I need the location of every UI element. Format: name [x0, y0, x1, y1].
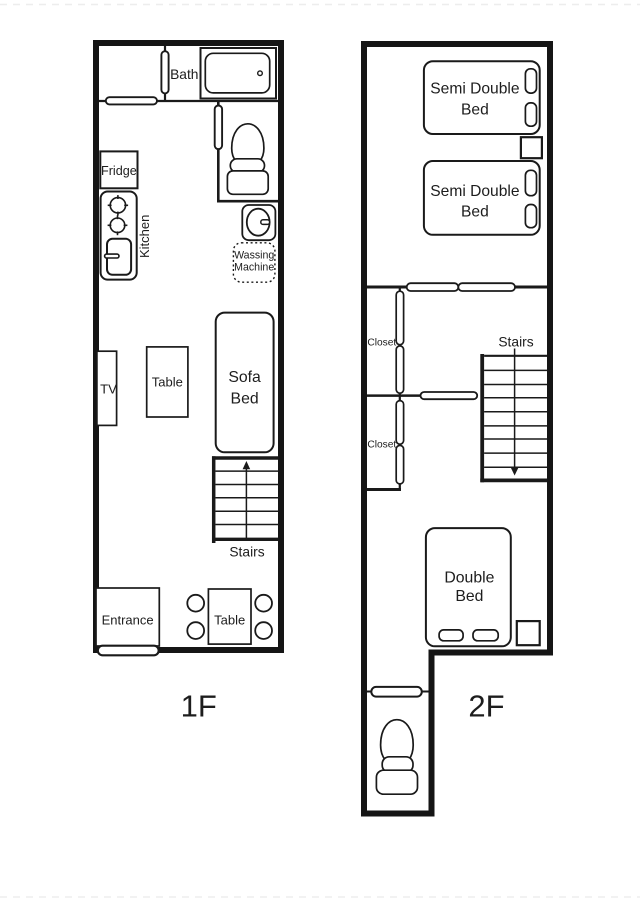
svg-text:Closet: Closet: [367, 337, 396, 348]
svg-text:1F: 1F: [181, 689, 217, 724]
svg-text:Kitchen: Kitchen: [137, 215, 152, 258]
svg-text:Sofa: Sofa: [228, 369, 261, 386]
svg-text:Entrance: Entrance: [102, 612, 154, 627]
svg-text:Table: Table: [214, 612, 245, 627]
svg-text:Bed: Bed: [455, 588, 483, 605]
svg-text:Machine: Machine: [234, 261, 274, 273]
svg-text:Stairs: Stairs: [229, 545, 264, 560]
svg-text:Bed: Bed: [231, 391, 259, 408]
svg-text:TV: TV: [100, 381, 117, 396]
svg-text:Fridge: Fridge: [101, 164, 137, 178]
svg-text:Bed: Bed: [461, 203, 489, 220]
svg-text:Table: Table: [152, 374, 183, 389]
svg-text:Semi Double: Semi Double: [430, 183, 519, 200]
svg-text:Closet: Closet: [367, 439, 396, 450]
svg-text:Semi Double: Semi Double: [430, 81, 519, 98]
svg-text:Bed: Bed: [461, 102, 489, 119]
svg-text:Bath: Bath: [170, 67, 198, 82]
svg-text:Double: Double: [444, 569, 494, 586]
svg-text:Stairs: Stairs: [498, 335, 533, 350]
svg-text:2F: 2F: [468, 689, 504, 724]
svg-text:Wassing: Wassing: [234, 250, 274, 262]
